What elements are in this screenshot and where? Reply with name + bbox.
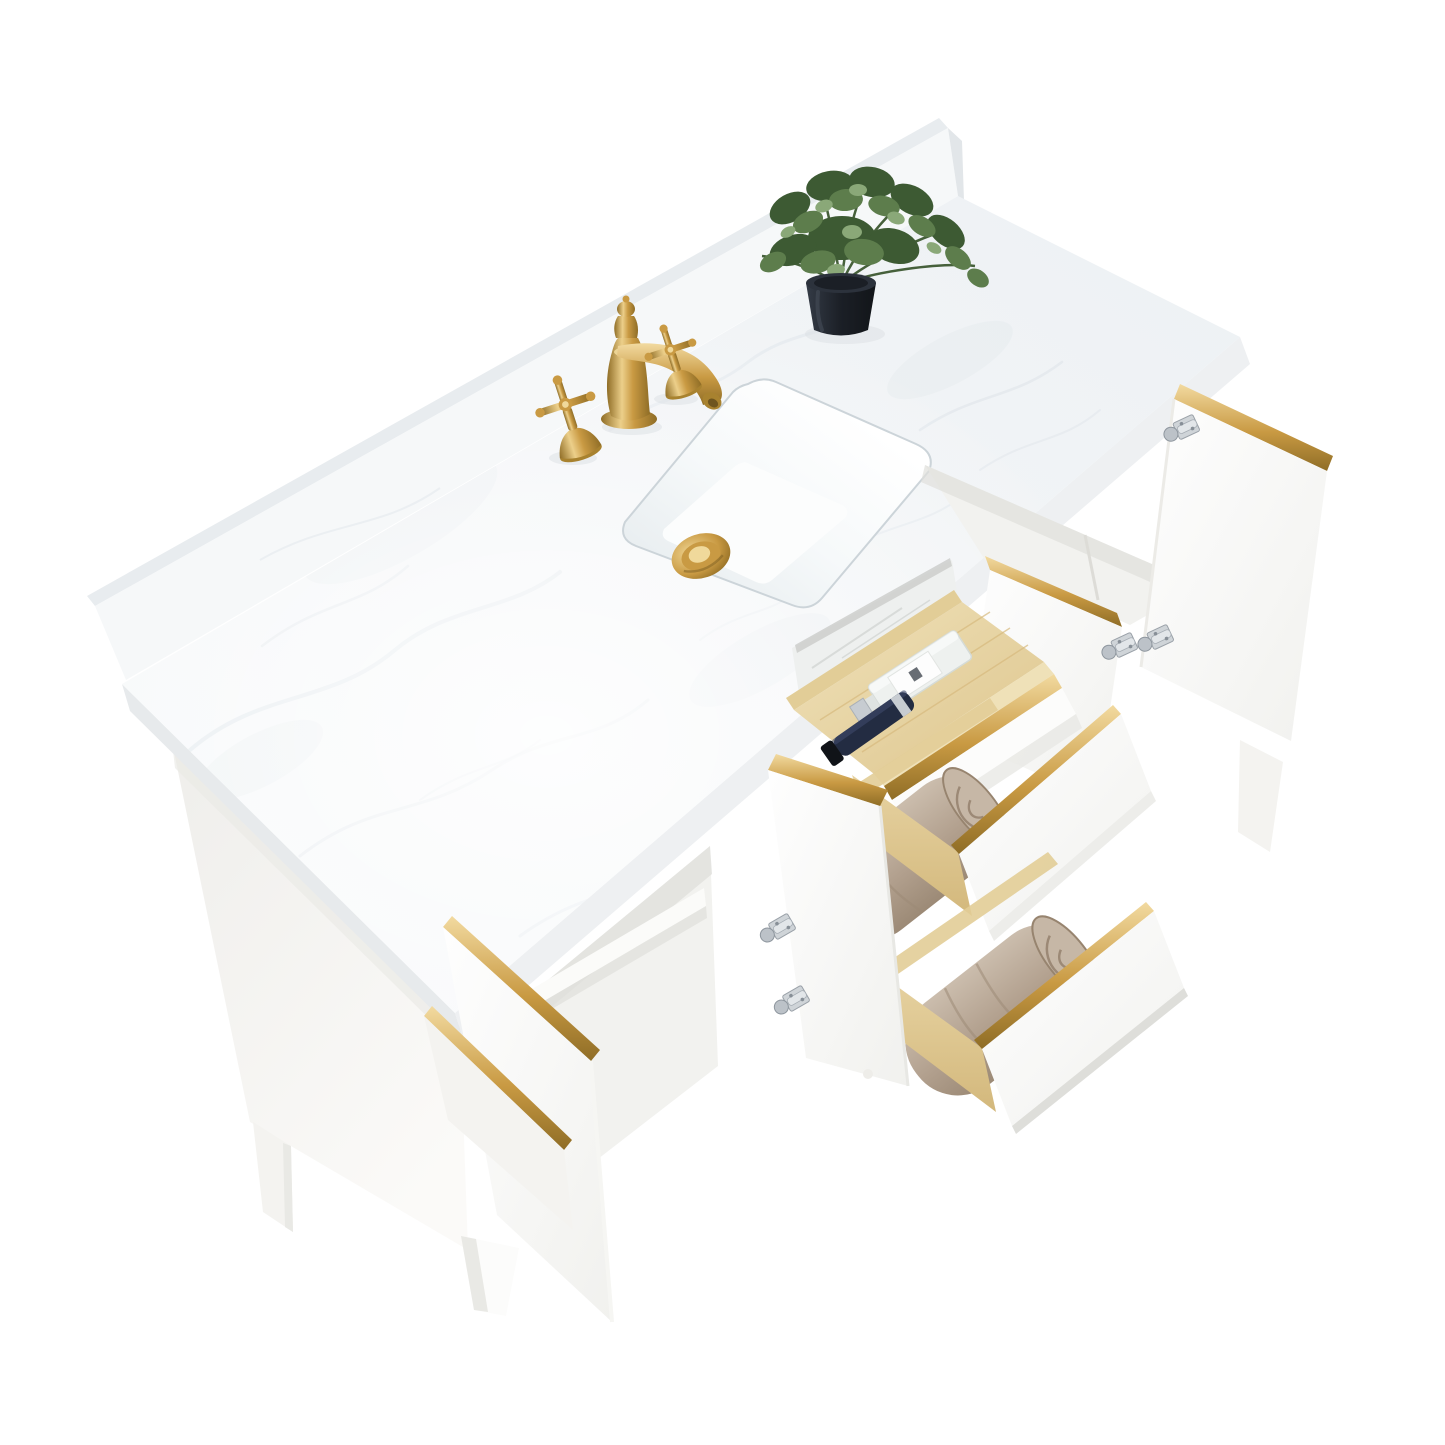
plant-pot bbox=[806, 273, 876, 336]
vanity-illustration: White and gold bathroom vanity with marb… bbox=[0, 0, 1445, 1445]
spout-finial-tip bbox=[623, 296, 630, 303]
spout-neck bbox=[614, 316, 638, 338]
door-bumper bbox=[863, 1069, 873, 1079]
pot-soil bbox=[814, 276, 868, 290]
product-photo-stage: White and gold bathroom vanity with marb… bbox=[0, 0, 1445, 1445]
spout-finial bbox=[617, 301, 635, 317]
